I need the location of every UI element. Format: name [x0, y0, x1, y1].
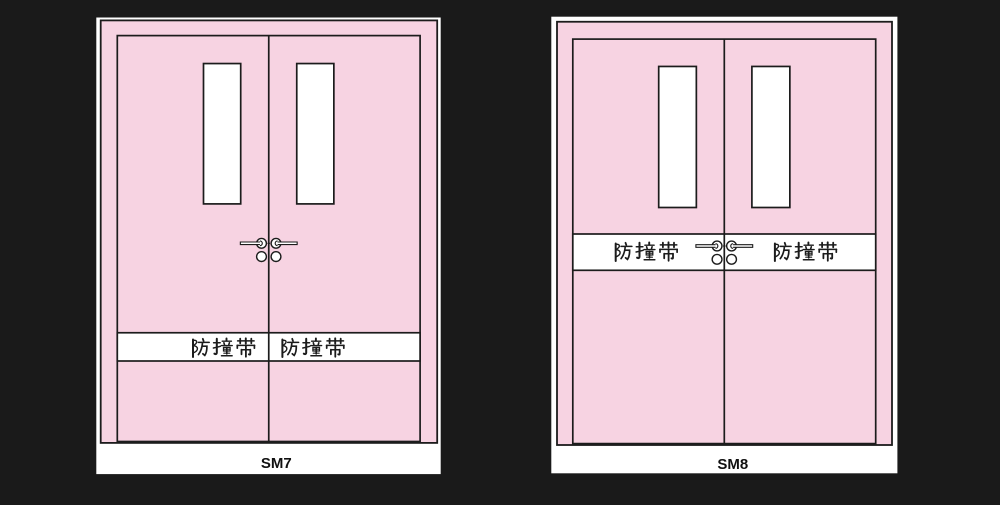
svg-text:SM7: SM7 [261, 455, 292, 472]
svg-text:SM8: SM8 [717, 456, 748, 473]
